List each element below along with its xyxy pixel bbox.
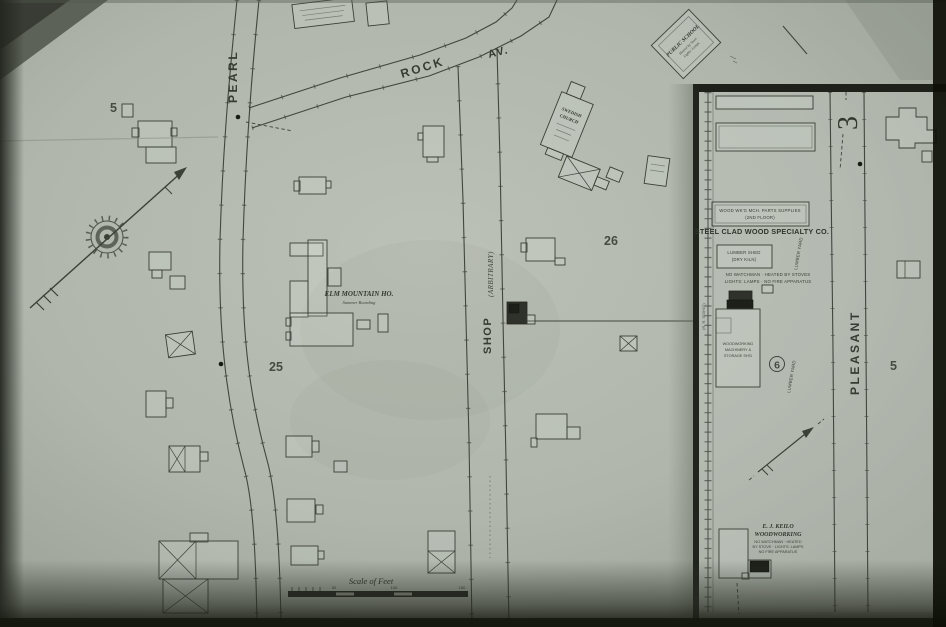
boiler-room	[727, 300, 753, 309]
panel-border-left	[693, 84, 699, 627]
street-name-pearl: PEARL	[226, 50, 240, 103]
block-number-6: 6	[774, 360, 780, 372]
outbuilding	[644, 156, 670, 187]
street-name-shop: SHOP	[482, 317, 494, 354]
block-number-5-west: 5	[110, 101, 117, 115]
machinery-label-line1: WOODWORKING	[723, 342, 754, 346]
railroad-siding-label: (R. R. SIDING)	[701, 303, 706, 330]
block-number-25: 25	[269, 360, 283, 374]
hydrant-dot	[219, 362, 224, 367]
porch	[316, 505, 323, 514]
steel-clad-title: STEEL CLAD WOOD SPECIALTY CO.	[695, 227, 829, 236]
street-name-pleasant: PLEASANT	[848, 310, 862, 395]
outbuilding	[357, 320, 370, 329]
outbuilding	[334, 461, 347, 472]
block-number-3: 3	[833, 116, 864, 130]
porch	[312, 441, 319, 452]
map-canvas: PEARL ROCK AV. SHOP (ARBITRARY) 5 25 26	[0, 0, 946, 627]
keilo-note-line1: NO WATCHMAN · HEATED	[754, 540, 801, 544]
lumber-shed-label-line1: LUMBER SHED	[727, 250, 760, 255]
outbuilding	[378, 314, 388, 332]
elm-mountain-house-label: ELM MOUNTAIN HO.	[324, 290, 394, 298]
machinery-label-line2: MACHINERY &	[725, 348, 752, 352]
porch	[294, 181, 300, 191]
keilo-note-line3: NO FIRE APPARATUS	[759, 550, 798, 554]
outbuilding	[762, 285, 773, 293]
sanborn-map-sheet: PEARL ROCK AV. SHOP (ARBITRARY) 5 25 26	[0, 0, 946, 627]
dwelling	[286, 436, 312, 457]
panel-border-top	[693, 84, 946, 92]
supplies-building	[712, 202, 809, 226]
porch	[318, 551, 324, 559]
dwelling	[138, 121, 172, 147]
keilo-label-line1: E. J. KEILO	[761, 524, 794, 530]
dwelling	[170, 276, 185, 289]
lumber-shed-long	[716, 96, 813, 109]
dwelling-wing	[146, 147, 176, 163]
fold-shadow	[668, 84, 693, 627]
engine-room	[729, 291, 752, 300]
keilo-note-line2: BY STOVE · LIGHTS: LAMPS	[753, 545, 804, 549]
left-edge-shadow	[0, 0, 24, 627]
bottom-edge-shadow	[0, 560, 946, 627]
porch	[152, 270, 162, 278]
stable-x-building	[620, 336, 637, 351]
porch	[286, 318, 291, 326]
porch	[166, 398, 173, 408]
stable-x-building	[165, 331, 195, 358]
outbuilding	[922, 151, 932, 162]
lumber-shed-long	[716, 123, 815, 151]
street-qualifier-arbitrary: (ARBITRARY)	[487, 251, 495, 297]
bottom-edge-dark	[0, 618, 946, 627]
supplies-label-line1: WOOD WK'G MCH. PARTS SUPPLIES	[719, 208, 800, 213]
inset-panel: (R. R. SIDING) PLEASANT 3 WOOD WK'G MCH.…	[693, 84, 946, 627]
hydrant-dot	[236, 115, 241, 120]
outbuilding	[366, 1, 389, 26]
dwelling	[897, 261, 920, 278]
top-edge	[0, 0, 946, 3]
block-number-5-east: 5	[890, 359, 897, 373]
dwelling	[299, 177, 326, 194]
factory-note-line1: NO WATCHMAN · HEATED BY STOVES	[726, 272, 811, 277]
dwelling	[122, 104, 133, 117]
show-through-smudge	[290, 360, 490, 480]
keilo-label-line2: WOODWORKING	[754, 532, 802, 538]
factory-note-line2: LIGHTS: LAMPS · NO FIRE APPARATUS	[725, 279, 812, 284]
porch	[171, 128, 177, 136]
supplies-label-line2: (2ND FLOOR)	[745, 215, 775, 220]
dwelling	[149, 252, 171, 270]
hydrant-dot	[858, 162, 863, 167]
porch	[326, 181, 331, 188]
porch	[132, 128, 139, 137]
right-edge-dark	[933, 0, 946, 627]
dwelling	[287, 499, 315, 522]
machinery-label-line3: STORAGE SH'D	[724, 354, 753, 358]
porch	[286, 332, 291, 340]
dwelling	[146, 391, 166, 417]
lumber-shed-label-line2: (DRY KILN)	[732, 257, 757, 262]
elm-mountain-house-note: Summer Boarding	[343, 300, 376, 305]
block-number-26: 26	[604, 234, 618, 248]
